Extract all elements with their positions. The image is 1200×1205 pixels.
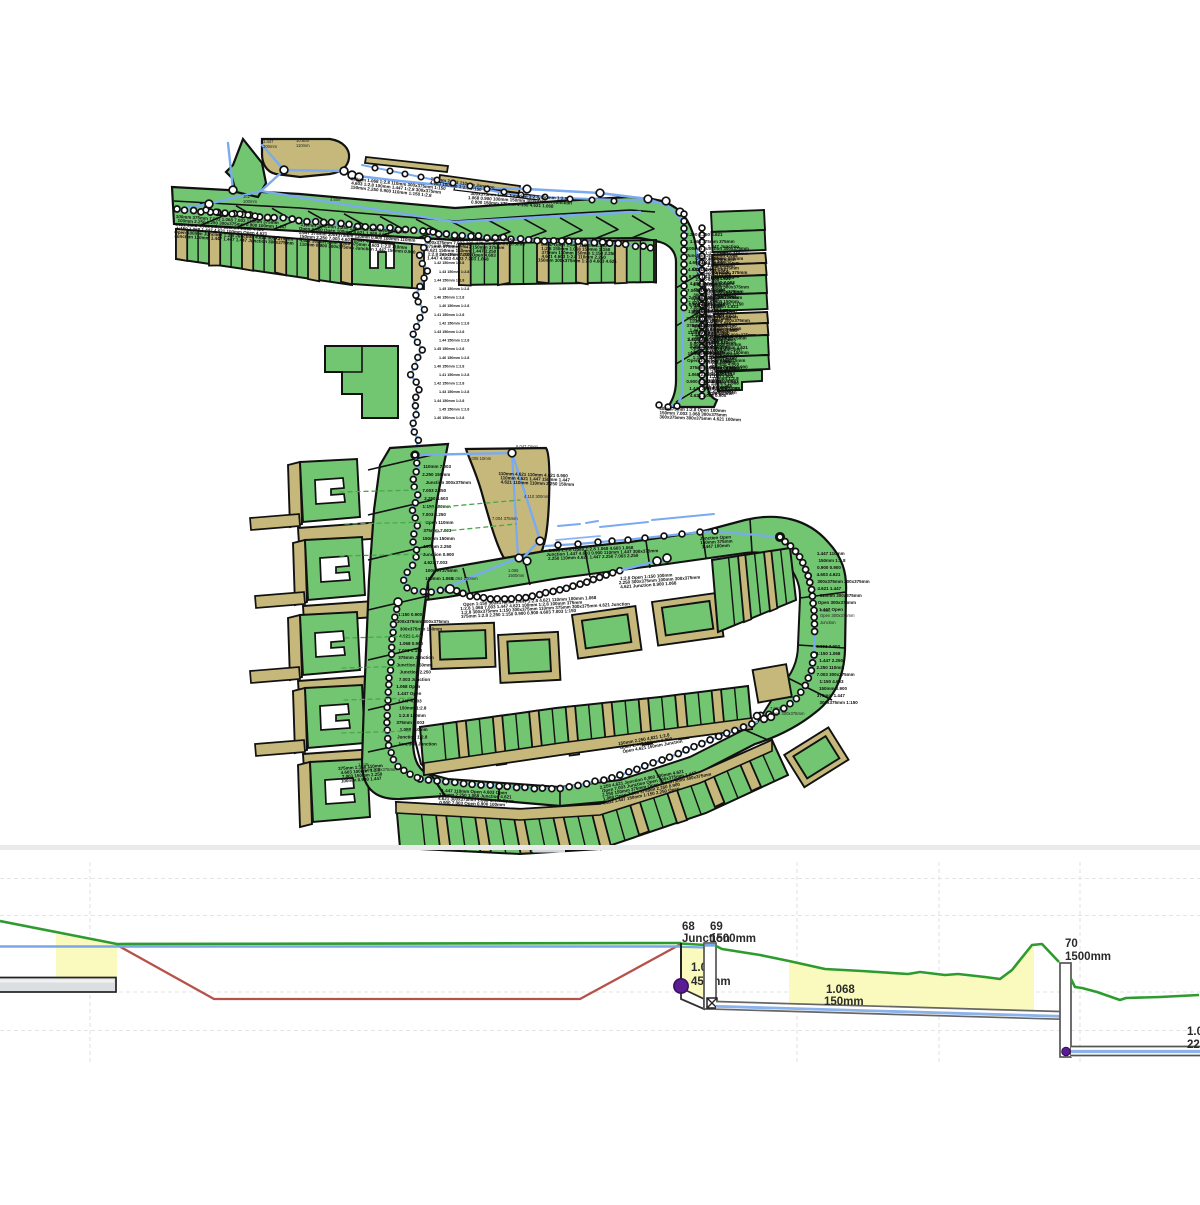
- svg-text:6.047 Open: 6.047 Open: [516, 444, 539, 449]
- svg-text:150mm 1:2.8: 150mm 1:2.8: [399, 706, 427, 711]
- svg-text:Open 300x375mm: Open 300x375mm: [818, 600, 856, 605]
- svg-text:7.003 1:150: 7.003 1:150: [398, 648, 423, 653]
- svg-text:1.42 150mm 1:2.8: 1.42 150mm 1:2.8: [434, 261, 464, 265]
- svg-text:Open 300x375mm: Open 300x375mm: [770, 711, 805, 716]
- svg-text:150mm 1:2.8: 150mm 1:2.8: [819, 558, 847, 563]
- svg-text:1.447 Junction: 1.447 Junction: [708, 244, 740, 249]
- svg-text:150mm 0.900: 150mm 0.900: [819, 686, 848, 691]
- svg-text:1.44 150mm 1:2.8: 1.44 150mm 1:2.8: [439, 339, 469, 343]
- svg-text:4.621 7.003: 4.621 7.003: [424, 560, 448, 565]
- svg-text:375mm 7.003: 375mm 7.003: [396, 720, 425, 725]
- svg-text:110mm 7.003: 110mm 7.003: [423, 464, 451, 469]
- svg-text:Open 300x375mm: Open 300x375mm: [362, 767, 397, 772]
- svg-text:4.609: 4.609: [330, 197, 341, 202]
- svg-text:300x375mm 300x375mm: 300x375mm 300x375mm: [817, 579, 869, 584]
- svg-text:1.44 150mm 1:2.8: 1.44 150mm 1:2.8: [434, 399, 464, 403]
- svg-text:100mm 1.068: 100mm 1.068: [425, 576, 454, 581]
- svg-text:1.46 150mm 1:2.8: 1.46 150mm 1:2.8: [434, 416, 464, 420]
- svg-text:1.42 150mm 1:2.8: 1.42 150mm 1:2.8: [434, 382, 464, 386]
- svg-text:300x375mm 150mm: 300x375mm 150mm: [400, 626, 442, 631]
- svg-text:1500mm: 1500mm: [710, 933, 756, 945]
- svg-text:Junction 0.900: Junction 0.900: [423, 552, 455, 557]
- svg-text:150mm 150mm: 150mm 150mm: [423, 536, 455, 541]
- svg-text:1.45 150mm 1:2.8: 1.45 150mm 1:2.8: [434, 347, 464, 351]
- svg-text:4.110 300mm: 4.110 300mm: [524, 494, 550, 499]
- svg-text:1.40 150mm 1:2.8: 1.40 150mm 1:2.8: [434, 244, 464, 248]
- svg-text:1:150 1.068: 1:150 1.068: [816, 651, 841, 656]
- svg-text:7.003 2.250: 7.003 2.250: [422, 488, 446, 493]
- svg-text:1:2.8 7.003: 1:2.8 7.003: [705, 250, 728, 255]
- svg-text:2.250 2.250 4.621: 2.250 2.250 4.621: [686, 232, 723, 237]
- svg-text:69: 69: [710, 921, 723, 933]
- svg-text:1.41 150mm 1:2.8: 1.41 150mm 1:2.8: [439, 373, 469, 377]
- svg-text:4.603 7.003: 4.603 7.003: [816, 644, 840, 649]
- svg-text:1.41 150mm 1:2.8: 1.41 150mm 1:2.8: [439, 253, 469, 257]
- svg-text:1:2.8 100mm: 1:2.8 100mm: [399, 713, 426, 718]
- svg-text:1.447 Open: 1.447 Open: [397, 691, 421, 696]
- svg-text:100mm: 100mm: [243, 199, 257, 204]
- svg-text:2.250 110mm: 2.250 110mm: [817, 665, 845, 670]
- svg-text:375mm Junction: 375mm Junction: [398, 655, 434, 660]
- svg-text:1:150 4.603: 1:150 4.603: [820, 679, 845, 684]
- svg-text:100mm 375mm: 100mm 375mm: [425, 568, 457, 573]
- svg-text:1.45 150mm 1:2.8: 1.45 150mm 1:2.8: [439, 287, 469, 291]
- svg-text:Junction 300x375mm: Junction 300x375mm: [426, 480, 472, 485]
- svg-text:1.447 110mm: 1.447 110mm: [817, 551, 845, 556]
- svg-text:Junction 1:2.8: Junction 1:2.8: [397, 734, 428, 739]
- svg-text:1:150 7.003: 1:150 7.003: [693, 355, 718, 360]
- svg-text:1.46 150mm 1:2.8: 1.46 150mm 1:2.8: [439, 356, 469, 360]
- svg-text:4.603 4.621: 4.603 4.621: [817, 572, 841, 577]
- svg-text:7.003 2.250: 7.003 2.250: [422, 512, 446, 517]
- svg-text:1.068 Open: 1.068 Open: [396, 684, 420, 689]
- svg-text:1.40 150mm 1:2.8: 1.40 150mm 1:2.8: [439, 304, 469, 308]
- svg-text:110mm 300x375mm: 110mm 300x375mm: [820, 593, 862, 598]
- svg-text:7.003 300x375mm: 7.003 300x375mm: [817, 672, 855, 677]
- svg-text:Junction 2.250: Junction 2.250: [400, 670, 432, 675]
- svg-text:1.41 150mm 1:2.8: 1.41 150mm 1:2.8: [434, 313, 464, 317]
- svg-text:1.42 150mm 1:2.8: 1.42 150mm 1:2.8: [439, 321, 469, 325]
- svg-text:1.45 150mm 1:2.8: 1.45 150mm 1:2.8: [439, 407, 469, 411]
- svg-text:7.005 10mm: 7.005 10mm: [468, 456, 492, 461]
- svg-text:0.900 0.900: 0.900 0.900: [817, 565, 841, 570]
- svg-text:1500mm: 1500mm: [508, 573, 525, 578]
- svg-text:300mm: 300mm: [263, 144, 277, 149]
- svg-text:Open 110mm: Open 110mm: [426, 520, 454, 525]
- svg-text:1.068 110mm: 1.068 110mm: [400, 727, 428, 732]
- svg-text:Junction Junction: Junction Junction: [398, 742, 437, 747]
- svg-text:1500mm: 1500mm: [1065, 951, 1111, 963]
- svg-text:375mm 1.447: 375mm 1.447: [817, 693, 846, 698]
- svg-text:1.064 100mm: 1.064 100mm: [452, 576, 478, 581]
- svg-text:1.43 150mm 1:2.8: 1.43 150mm 1:2.8: [434, 330, 464, 334]
- svg-text:110mm: 110mm: [296, 143, 310, 148]
- svg-text:7.003 Junction: 7.003 Junction: [399, 677, 431, 682]
- svg-text:1.43 150mm 1:2.8: 1.43 150mm 1:2.8: [439, 270, 469, 274]
- svg-text:4.621 1.447: 4.621 1.447: [817, 586, 841, 591]
- svg-text:1.40 150mm 1:2.8: 1.40 150mm 1:2.8: [434, 364, 464, 368]
- svg-text:70: 70: [1065, 938, 1078, 950]
- svg-text:2.250 4.603: 2.250 4.603: [424, 496, 448, 501]
- svg-text:300x375mm 1:150: 300x375mm 1:150: [820, 700, 859, 705]
- svg-text:1.06: 1.06: [1187, 1026, 1200, 1038]
- svg-text:1.447 2.250: 1.447 2.250: [819, 658, 843, 663]
- svg-text:1.44 150mm 1:2.8: 1.44 150mm 1:2.8: [434, 278, 464, 282]
- svg-text:225: 225: [1187, 1039, 1200, 1051]
- svg-text:1.068: 1.068: [826, 984, 855, 996]
- svg-text:68: 68: [682, 921, 695, 933]
- svg-text:150mm: 150mm: [824, 996, 864, 1008]
- svg-text:1.46 150mm 1:2.8: 1.46 150mm 1:2.8: [434, 296, 464, 300]
- svg-text:2.250 Open: 2.250 Open: [709, 388, 733, 393]
- svg-text:100mm 2.250: 100mm 2.250: [423, 544, 452, 549]
- svg-text:1:150 0.900: 1:150 0.900: [398, 612, 423, 617]
- svg-text:2.250 150mm: 2.250 150mm: [422, 472, 450, 477]
- svg-text:7.004 375mm: 7.004 375mm: [492, 516, 518, 521]
- svg-text:Junction: Junction: [820, 620, 836, 625]
- svg-text:1.43 150mm 1:2.8: 1.43 150mm 1:2.8: [439, 390, 469, 394]
- svg-text:1.447 4.603: 1.447 4.603: [398, 698, 422, 703]
- svg-text:300x375mm 300x375mm: 300x375mm 300x375mm: [397, 619, 449, 624]
- svg-text:Open 300x375mm: Open 300x375mm: [820, 613, 855, 618]
- svg-text:1.068 0.900: 1.068 0.900: [399, 641, 423, 646]
